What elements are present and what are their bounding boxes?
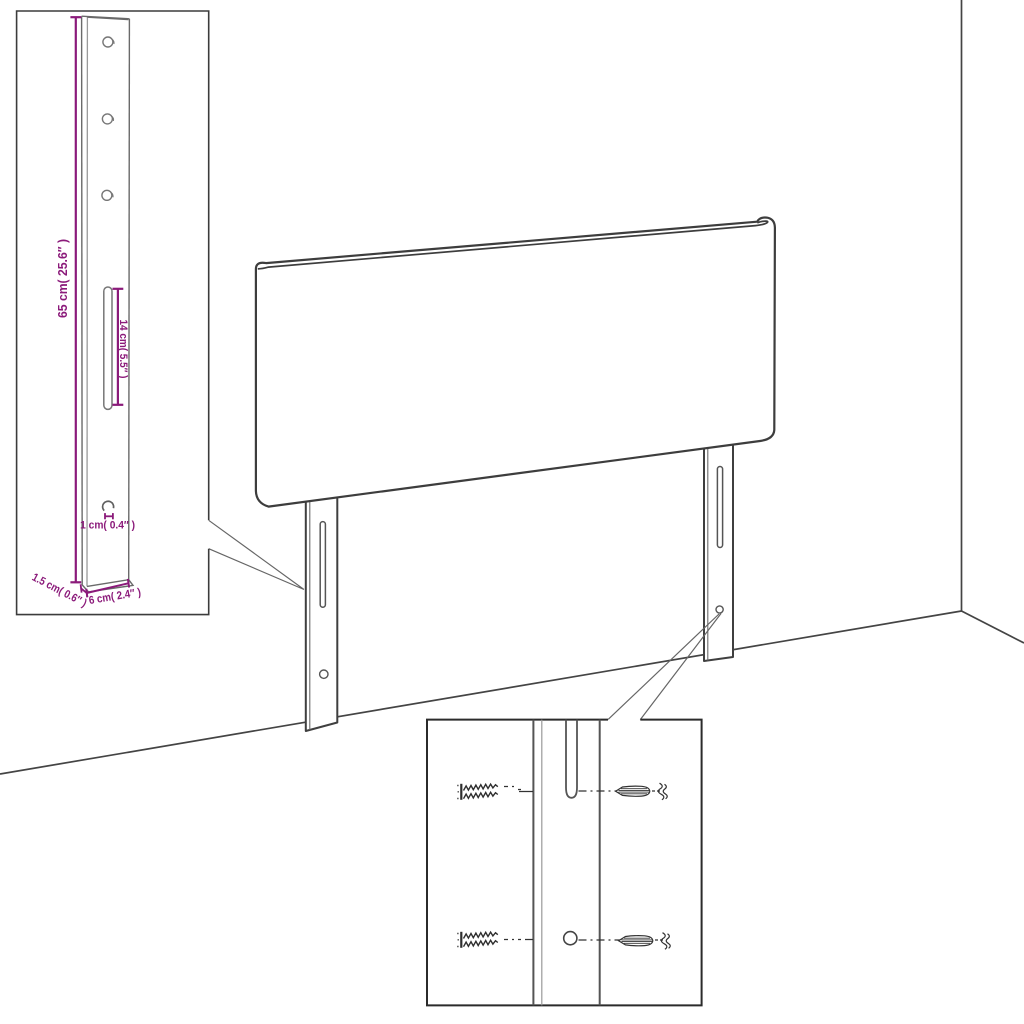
svg-text:65 cm( 25.6″ ): 65 cm( 25.6″ ) xyxy=(56,239,70,318)
svg-text:1 cm( 0.4″ ): 1 cm( 0.4″ ) xyxy=(80,520,135,532)
svg-text:14 cm( 5.5″ ): 14 cm( 5.5″ ) xyxy=(117,320,129,379)
